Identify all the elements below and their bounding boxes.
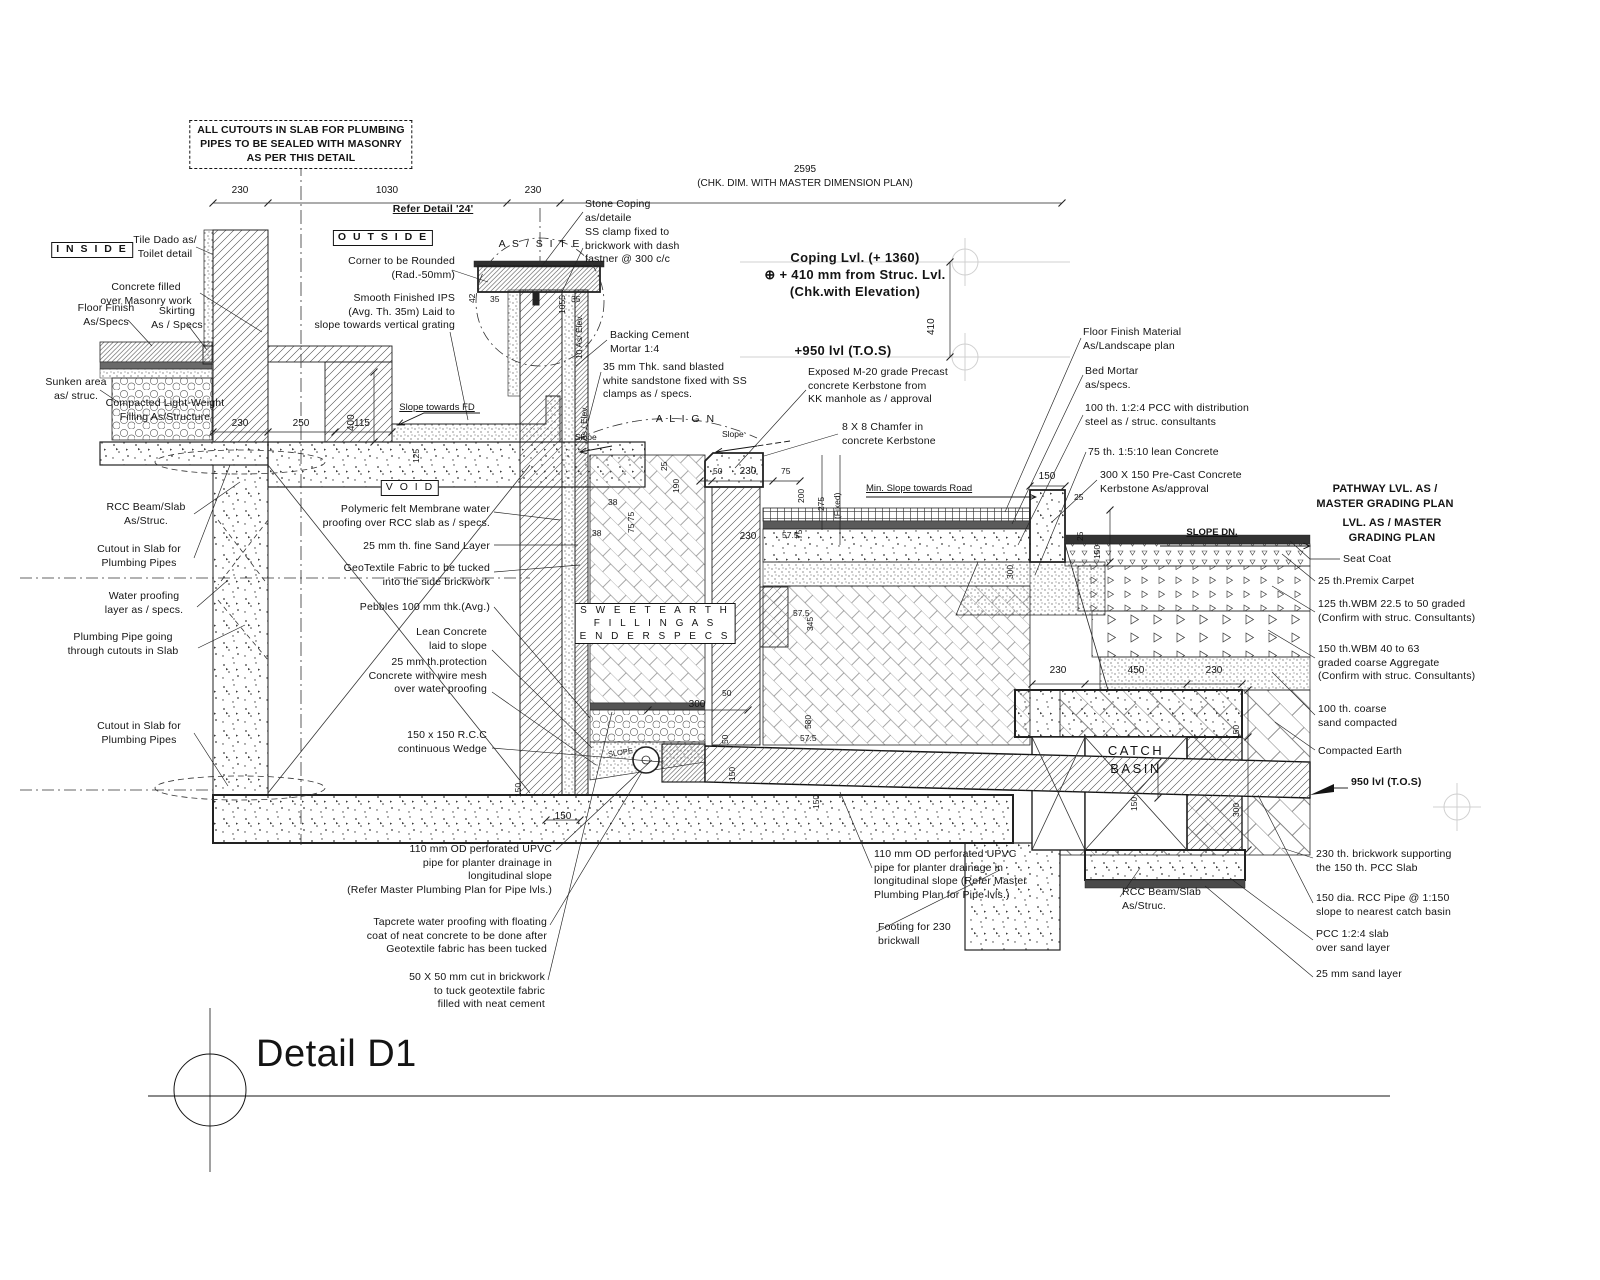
dim-580: 580 [803, 715, 814, 729]
chk-dim-note: (CHK. DIM. WITH MASTER DIMENSION PLAN) [697, 177, 913, 190]
waterproofing-layer-label: Water proofing layer as / specs. [105, 590, 183, 617]
smooth-ips-label: Smooth Finished IPS (Avg. Th. 35m) Laid … [315, 292, 455, 333]
dim-300-cb: 300 [1231, 803, 1242, 817]
dim-25-kerbstone: 25 [1074, 492, 1083, 503]
cutout-slab-1-label: Cutout in Slab for Plumbing Pipes [97, 543, 181, 570]
dim-2595: 2595 [794, 163, 816, 176]
compacted-lightweight-label: Compacted Light-Weight Filling As/Struct… [106, 397, 225, 424]
dim-35-left: 35 [490, 294, 499, 305]
sand-layer-25-label: 25 mm sand layer [1316, 968, 1402, 982]
plumbing-pipe-label: Plumbing Pipe going through cutouts in S… [68, 631, 179, 658]
dim-25-kerbstone-v: 25 [1075, 532, 1086, 541]
dim-410: 410 [925, 318, 938, 335]
kerbstone-300x150-label: 300 X 150 Pre-Cast Concrete Kerbstone As… [1100, 469, 1242, 496]
dim-230-top-left: 230 [232, 184, 249, 197]
dim-57-5-b: 57.5 [793, 608, 810, 619]
dim-75-75: 75 75 [626, 512, 637, 533]
wbm-125-label: 125 th.WBM 22.5 to 50 graded (Confirm wi… [1318, 598, 1475, 625]
dim-150-planter: 150 [727, 767, 738, 781]
dim-42: 42 [467, 294, 478, 303]
dim-300-planter: 300 [689, 698, 706, 711]
dim-250: 250 [293, 417, 310, 430]
sandstone-cladding-label: 35 mm Thk. sand blasted white sandstone … [603, 361, 747, 402]
dim-230-cb-right: 230 [1206, 664, 1223, 677]
cut-50x50-label: 50 X 50 mm cut in brickwork to tuck geot… [409, 971, 545, 1012]
dim-57-5-c: 57.5 [800, 733, 817, 744]
wbm-150-label: 150 th.WBM 40 to 63 graded coarse Aggreg… [1318, 643, 1475, 684]
as-site-label: A S / S I T E [499, 238, 582, 252]
dim-230-kerb: 230 [740, 465, 757, 478]
sweet-earth-label: S W E E T E A R T H F I L L I N G A S E … [575, 603, 736, 644]
coarse-sand-label: 100 th. coarse sand compacted [1318, 703, 1397, 730]
inside-label: I N S I D E [51, 242, 133, 258]
skirting-label: Skirting As / Specs [151, 305, 203, 332]
floor-finish-material-label: Floor Finish Material As/Landscape plan [1083, 326, 1181, 353]
slope-right-label: Slope [722, 429, 744, 440]
stone-coping-label: Stone Coping as/detaile [585, 198, 650, 225]
outside-label: O U T S I D E [333, 230, 433, 246]
rcc-pipe-150-label: 150 dia. RCC Pipe @ 1:150 slope to neare… [1316, 892, 1451, 919]
exposed-kerbstone-label: Exposed M-20 grade Precast concrete Kerb… [808, 366, 948, 407]
polymeric-membrane-label: Polymeric felt Membrane water proofing o… [323, 503, 490, 530]
fine-sand-label: 25 mm th. fine Sand Layer [363, 540, 490, 554]
dim-150-band: 150 [811, 795, 822, 809]
protection-concrete-label: 25 mm th.protection Concrete with wire m… [369, 656, 487, 697]
premix-carpet-label: 25 th.Premix Carpet [1318, 575, 1414, 589]
coping-level-note: Coping Lvl. (+ 1360) ⊕ + 410 mm from Str… [764, 250, 945, 301]
slope-dn-label: SLOPE DN. [1186, 527, 1237, 539]
dim-230-mid: 230 [740, 530, 757, 543]
dim-450-cb: 450 [1128, 664, 1145, 677]
refer-detail-note: Refer Detail '24' [393, 203, 474, 217]
seat-coat-label: Seat Coat [1343, 553, 1391, 567]
tile-dado-label: Tile Dado as/ Toilet detail [133, 234, 196, 261]
dim-150-cb: 150 [1231, 725, 1242, 739]
corner-rounded-label: Corner to be Rounded (Rad.-50mm) [348, 255, 455, 282]
backing-mortar-label: Backing Cement Mortar 1:4 [610, 329, 689, 356]
dim-150-kerbstone: 150 [1039, 470, 1056, 483]
bed-mortar-label: Bed Mortar as/specs. [1085, 365, 1138, 392]
rcc-beam-right-label: RCC Beam/Slab As/Struc. [1122, 886, 1201, 913]
dim-230-top-right: 230 [525, 184, 542, 197]
detail-d1-drawing-sheet: ALL CUTOUTS IN SLAB FOR PLUMBING PIPES T… [0, 0, 1600, 1280]
lean-concrete-label: Lean Concrete laid to slope [416, 626, 487, 653]
pebbles-label: Pebbles 100 mm thk.(Avg.) [360, 601, 490, 615]
footing-230-label: Footing for 230 brickwall [878, 921, 951, 948]
dim-50-kerb: 50 [713, 466, 722, 477]
dim-57-5-a: 57.5 [782, 530, 799, 541]
rcc-beam-left-label: RCC Beam/Slab As/Struc. [107, 501, 186, 528]
dim-50-b: 50 [722, 688, 731, 699]
dim-25-planter: 25 [659, 462, 670, 471]
upvc-pipe-left-label: 110 mm OD perforated UPVC pipe for plant… [347, 843, 552, 898]
rcc-wedge-label: 150 x 150 R.C.C continuous Wedge [398, 729, 487, 756]
dim-10-as-elev: 10 As/ Elev. [574, 315, 585, 359]
geotextile-label: GeoTextile Fabric to be tucked into the … [344, 562, 490, 589]
upvc-pipe-right-label: 110 mm OD perforated UPVC pipe for plant… [874, 848, 1027, 903]
dim-115: 115 [354, 417, 370, 430]
catch-basin-label: CATCH BASIN [1108, 742, 1164, 778]
dim-150-pipe: 150 [1129, 797, 1140, 811]
dim-275: 275 [816, 497, 827, 511]
dim-150-kerb-v: 150 [1092, 545, 1103, 559]
min-slope-road-label: Min. Slope towards Road [866, 483, 972, 495]
dim-150-bottom: 150 [555, 810, 572, 823]
brickwork-230-label: 230 th. brickwork supporting the 150 th.… [1316, 848, 1452, 875]
dim-300-kerb-v: 300 [1005, 565, 1016, 579]
dim-150-bottom-v: 150 [513, 783, 524, 797]
lvl-master-header: LVL. AS / MASTER GRADING PLAN [1343, 516, 1442, 546]
pathway-lvl-header: PATHWAY LVL. AS / MASTER GRADING PLAN [1316, 482, 1453, 512]
dim-230-wall: 230 [232, 417, 249, 430]
dim-1030-top: 1030 [376, 184, 398, 197]
dim-1055: 1055 [557, 295, 568, 314]
dim-38-a: 38 [608, 497, 617, 508]
pcc-100-label: 100 th. 1:2:4 PCC with distribution stee… [1085, 402, 1249, 429]
dim-200: 200 [796, 489, 807, 503]
detail-d1-title: Detail D1 [256, 1030, 417, 1079]
floor-finish-label: Floor Finish As/Specs [78, 302, 135, 329]
compacted-earth-label: Compacted Earth [1318, 745, 1402, 759]
dim-as-elev: As / Elev. [579, 406, 590, 441]
dim-50-v: 50 [720, 735, 731, 744]
cutout-slab-2-label: Cutout in Slab for Plumbing Pipes [97, 720, 181, 747]
dim-35-right: 35 [571, 294, 580, 305]
sunken-area-label: Sunken area as/ struc. [45, 376, 106, 403]
void-label: V O I D [381, 480, 439, 496]
pcc-124-slab-label: PCC 1:2:4 slab over sand layer [1316, 928, 1390, 955]
tos-950-center: +950 lvl (T.O.S) [795, 343, 892, 360]
chamfer-label: 8 X 8 Chamfer in concrete Kerbstone [842, 421, 936, 448]
dim-fixed: (Fixed) [832, 493, 843, 519]
dim-38-b: 38 [592, 528, 601, 539]
dim-75-kerb: 75 [781, 466, 790, 477]
slope-towards-fd-label: Slope towards FD [399, 402, 475, 414]
tos-950-right: 950 lvl (T.O.S) [1351, 776, 1422, 790]
dim-125: 125 [411, 449, 422, 463]
ss-clamp-label: SS clamp fixed to brickwork with dash fa… [585, 226, 679, 267]
lean-75-label: 75 th. 1:5:10 lean Concrete [1088, 446, 1219, 460]
dim-230-cb-left: 230 [1050, 664, 1067, 677]
dim-190: 190 [671, 479, 682, 493]
tapcrete-label: Tapcrete water proofing with floating co… [367, 916, 547, 957]
slab-cutout-note: ALL CUTOUTS IN SLAB FOR PLUMBING PIPES T… [189, 120, 412, 169]
align-label: A L I G N [656, 413, 716, 427]
